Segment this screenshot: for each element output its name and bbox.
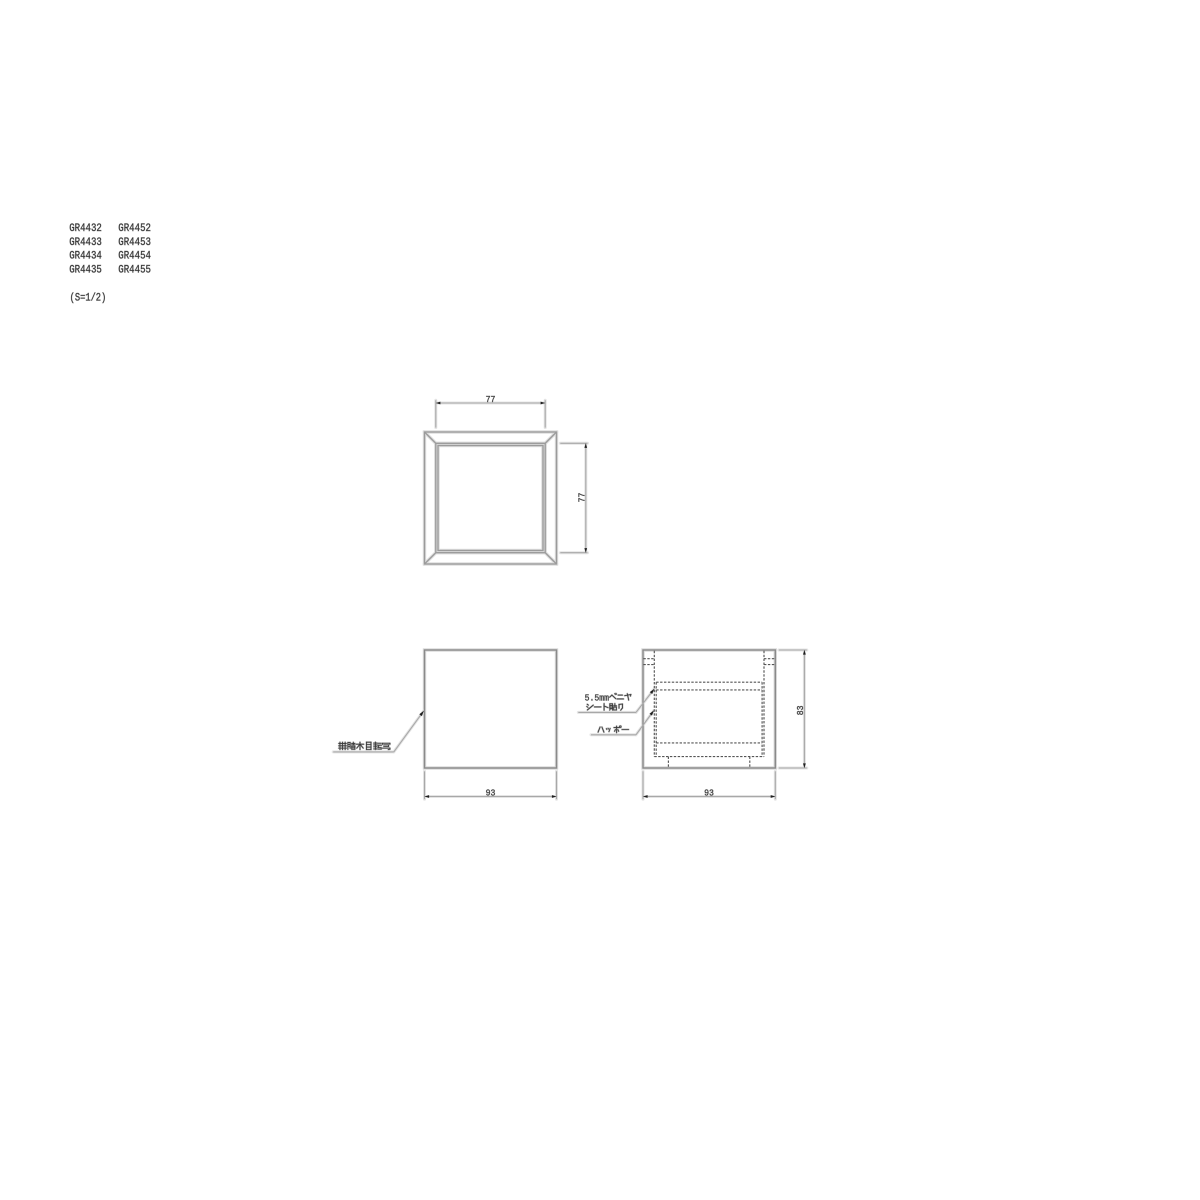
svg-text:GR4452: GR4452 bbox=[118, 222, 151, 234]
svg-text:93: 93 bbox=[486, 788, 496, 799]
svg-text:(S=1/2): (S=1/2) bbox=[70, 292, 107, 304]
svg-text:83: 83 bbox=[796, 706, 807, 716]
svg-text:GR4432: GR4432 bbox=[69, 222, 102, 234]
svg-text:GR4455: GR4455 bbox=[118, 264, 151, 276]
svg-text:GR4454: GR4454 bbox=[118, 250, 151, 262]
svg-text:GR4453: GR4453 bbox=[118, 236, 151, 248]
svg-text:77: 77 bbox=[577, 493, 588, 503]
svg-text:77: 77 bbox=[486, 394, 496, 405]
svg-text:GR4433: GR4433 bbox=[69, 236, 102, 248]
svg-text:93: 93 bbox=[704, 788, 714, 799]
svg-text:5.5mm: 5.5mm bbox=[585, 693, 609, 704]
svg-text:GR4434: GR4434 bbox=[69, 250, 102, 262]
svg-text:GR4435: GR4435 bbox=[69, 264, 102, 276]
